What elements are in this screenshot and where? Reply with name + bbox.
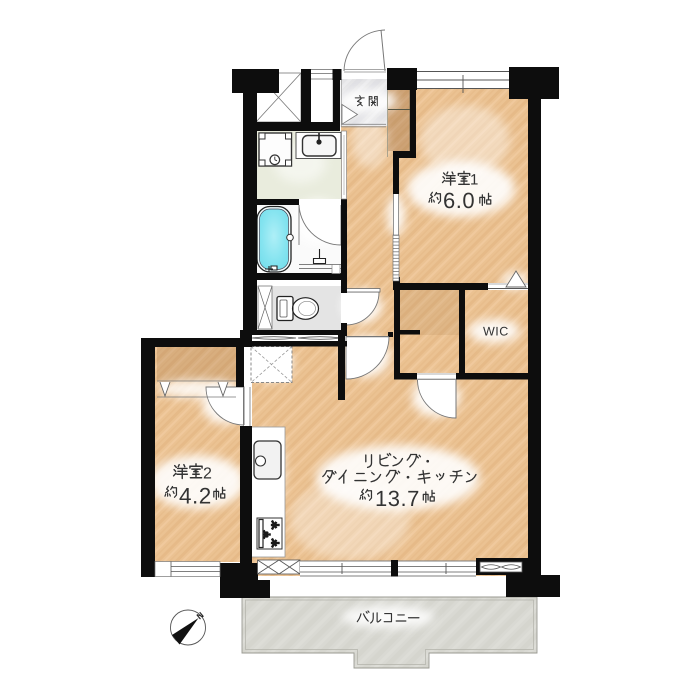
svg-text:6.0: 6.0 <box>443 188 475 213</box>
svg-text:4.2: 4.2 <box>179 484 212 509</box>
svg-text:1: 1 <box>470 172 478 189</box>
svg-text:WIC: WIC <box>483 325 509 339</box>
svg-text:2: 2 <box>203 466 212 483</box>
svg-text:13.7: 13.7 <box>375 486 420 511</box>
